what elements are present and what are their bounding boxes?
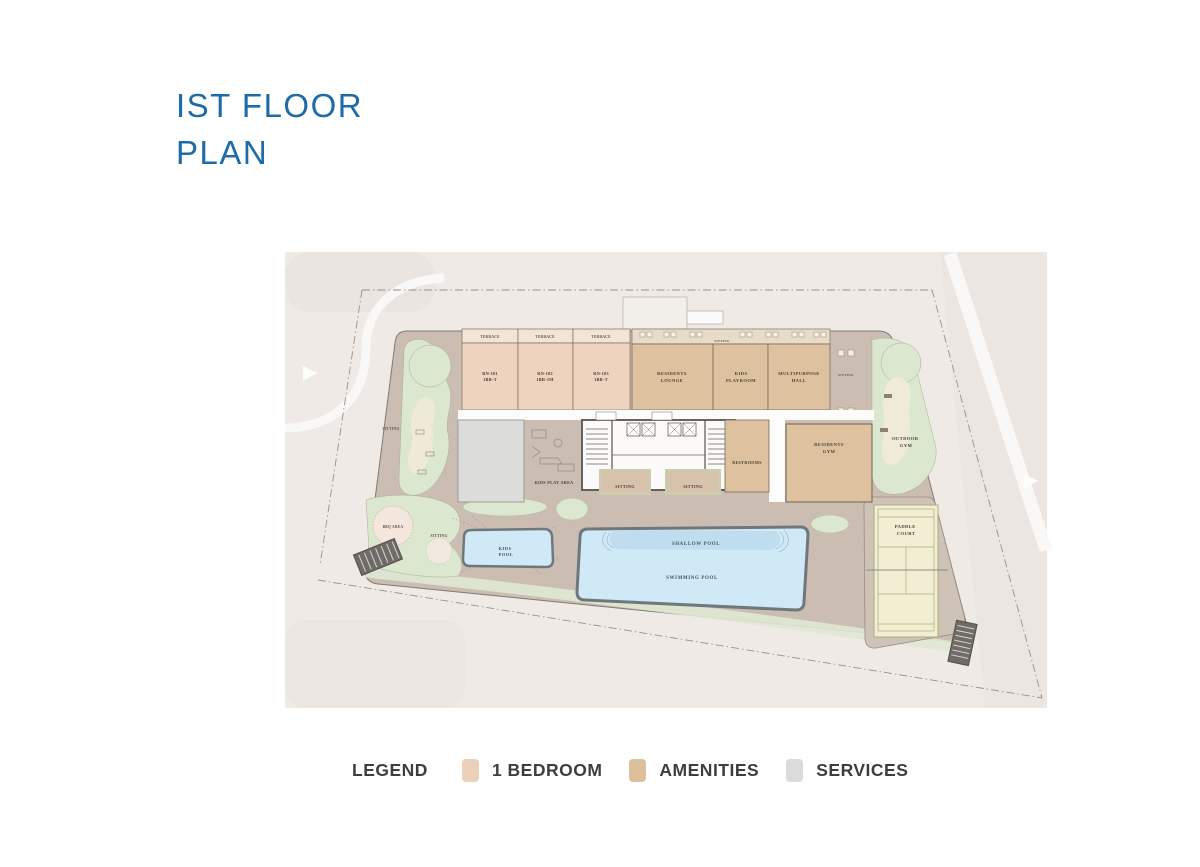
amenities-swatch-icon — [629, 759, 646, 782]
residents-gym-room — [786, 424, 872, 502]
kids-play-area-label: KIDS PLAY AREA — [534, 480, 573, 485]
sitting-label: SITTING — [838, 373, 854, 377]
one-bedroom-swatch-icon — [462, 759, 479, 782]
legend-label-amenities: AMENITIES — [659, 760, 759, 781]
unit-rn102-label: RN-1021BR-1M — [536, 371, 554, 382]
legend-item-amenities: AMENITIES — [629, 759, 759, 782]
sitting-label: SITTING — [430, 534, 447, 538]
swimming-pool: SHALLOW POOL SWIMMING POOL — [577, 527, 808, 610]
services-swatch-icon — [786, 759, 803, 782]
sitting-label: SITTING — [382, 427, 399, 431]
bbq-garden: BBQ AREA SITTING — [353, 495, 461, 577]
restrooms-label: RESTROOMS — [732, 460, 762, 465]
residential-units — [462, 329, 630, 410]
amenity-rooms — [632, 344, 830, 410]
terrace-label: TERRACE — [535, 335, 555, 339]
multipurpose-hall-room — [768, 344, 830, 410]
terrace-label: TERRACE — [480, 335, 500, 339]
swimming-pool-label: SWIMMING POOL — [666, 576, 718, 581]
page-title-line2: PLAN — [176, 129, 363, 176]
sitting-label: SITTING — [683, 484, 703, 489]
unit-rn101-label: RN-1011BR-T — [482, 371, 498, 382]
page-title-line1: IST FLOOR — [176, 82, 363, 129]
walkway — [769, 412, 785, 502]
kids-playroom-room — [713, 344, 768, 410]
legend-label-one-bedroom: 1 BEDROOM — [492, 760, 602, 781]
unit-rn103-label: RN-1031BR-T — [593, 371, 609, 382]
bbq-area-label: BBQ AREA — [383, 525, 404, 529]
amenity-terrace: SITTING — [632, 329, 830, 344]
shallow-pool-zone — [610, 530, 781, 550]
shallow-pool-label: SHALLOW POOL — [672, 542, 720, 547]
kids-pool-label: KIDS POOL — [499, 546, 514, 557]
sitting-label: SITTING — [615, 484, 635, 489]
services-block — [458, 420, 524, 502]
legend-item-one-bedroom: 1 BEDROOM — [462, 759, 602, 782]
residents-lounge-room — [632, 344, 713, 410]
legend: LEGEND 1 BEDROOM AMENITIES SERVICES — [352, 756, 935, 784]
restrooms-room — [725, 420, 769, 492]
sitting-label: SITTING — [714, 339, 730, 343]
legend-item-services: SERVICES — [786, 759, 908, 782]
legend-heading: LEGEND — [352, 760, 428, 781]
legend-label-services: SERVICES — [816, 760, 908, 781]
terrace-label: TERRACE — [591, 335, 611, 339]
page-title: IST FLOOR PLAN — [176, 82, 363, 176]
sitting-circle — [426, 538, 452, 564]
